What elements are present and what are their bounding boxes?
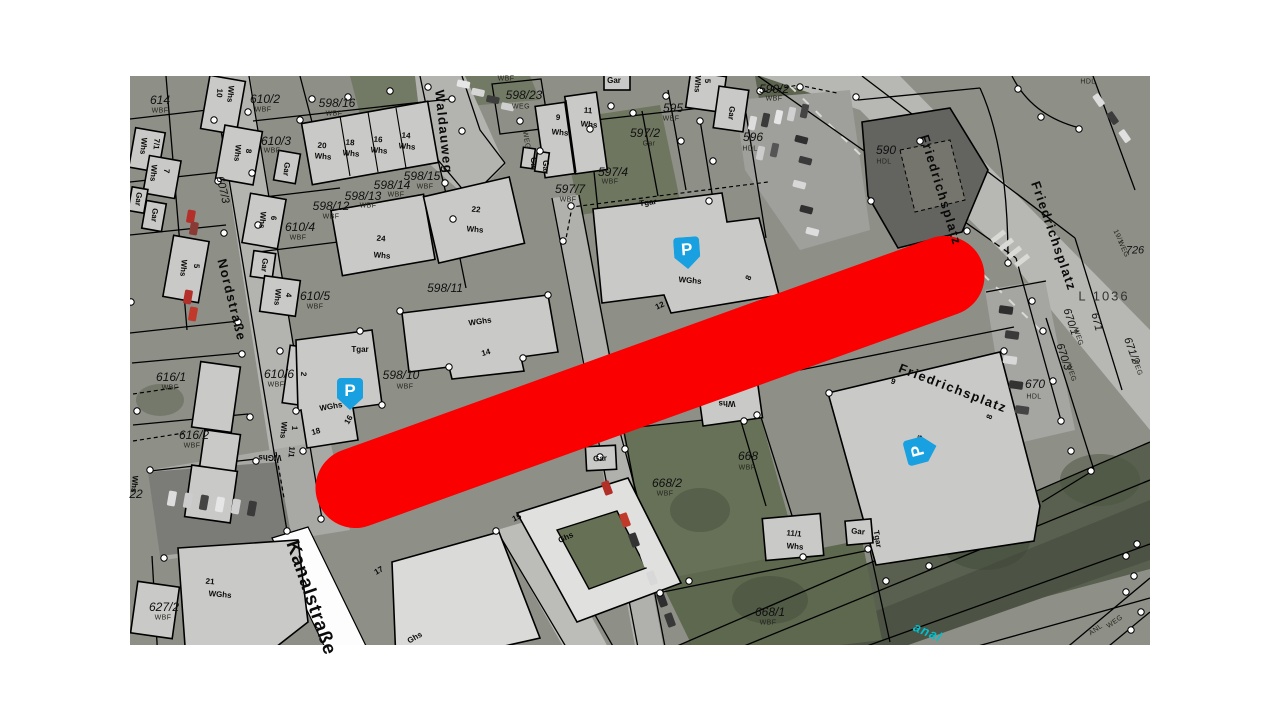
map-viewport[interactable]: WaldauwegNordstraßeKanalstraßeFriedrichs… — [0, 0, 1280, 720]
